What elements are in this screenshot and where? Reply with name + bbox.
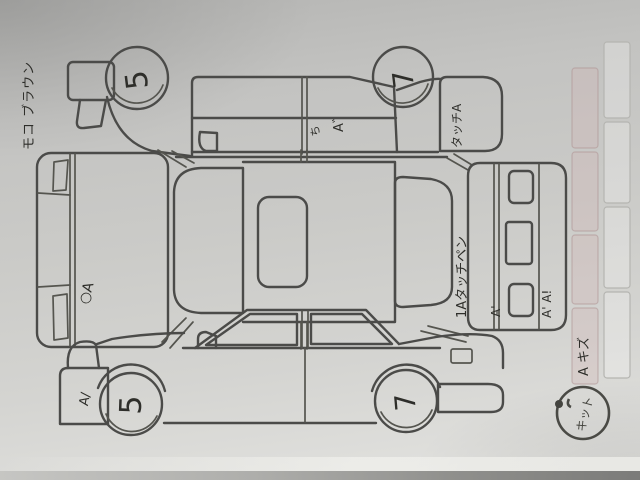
stamp-ink-blot xyxy=(555,400,563,408)
roof-view xyxy=(158,150,472,349)
damage-mark: A゛ xyxy=(332,110,347,132)
touchup-note: タッチA xyxy=(450,103,464,148)
auction-sheet-photo: 5 7 A゛ ち タッチA ○A xyxy=(0,0,640,480)
wiper-detail xyxy=(53,294,68,340)
corner-damage-marks: A' A! xyxy=(540,290,554,318)
hood-damage-mark: ○A xyxy=(76,280,97,306)
wiper-detail xyxy=(53,160,68,191)
tire-depth-number: 7 xyxy=(388,392,422,413)
bumper-damage-mark: A/ xyxy=(77,391,94,407)
tire-depth-number: 5 xyxy=(114,395,150,415)
tail-light xyxy=(509,171,533,203)
damage-diagram-sheet: 5 7 A゛ ち タッチA ○A xyxy=(0,0,640,480)
tire-depth-number: 5 xyxy=(119,68,156,91)
tail-light xyxy=(509,284,533,316)
front-outline xyxy=(37,153,168,347)
vehicle-color-note: モコ ブラウン xyxy=(21,61,37,150)
inspection-stamp: キット xyxy=(555,387,609,439)
form-grid xyxy=(572,42,630,384)
rear-window xyxy=(395,177,452,307)
door-mirror xyxy=(199,132,217,151)
rear-bumper xyxy=(438,384,503,412)
front-view: ○A xyxy=(37,153,168,347)
rear-view: 1Aタッチペン A' A' A! xyxy=(455,163,566,330)
paper-edge-highlight xyxy=(0,457,640,471)
license-plate xyxy=(506,222,532,264)
scratch-note: A キズ xyxy=(576,337,592,376)
rear-window xyxy=(311,314,392,344)
tire-depth-number: 7 xyxy=(386,68,421,90)
windshield xyxy=(174,168,243,313)
damage-scribble: ち xyxy=(309,125,323,137)
side-view-top: 5 7 A゛ ち タッチA xyxy=(68,47,502,157)
touchup-pen-note: 1Aタッチペン xyxy=(455,236,470,318)
stamp-text: キット xyxy=(574,395,597,433)
desk-shadow-strip xyxy=(0,471,640,480)
sunroof xyxy=(258,197,307,287)
headlight xyxy=(68,341,99,368)
bumper-damage-mark: A' xyxy=(489,305,503,317)
fuel-door xyxy=(451,349,472,363)
headlight xyxy=(77,100,106,128)
